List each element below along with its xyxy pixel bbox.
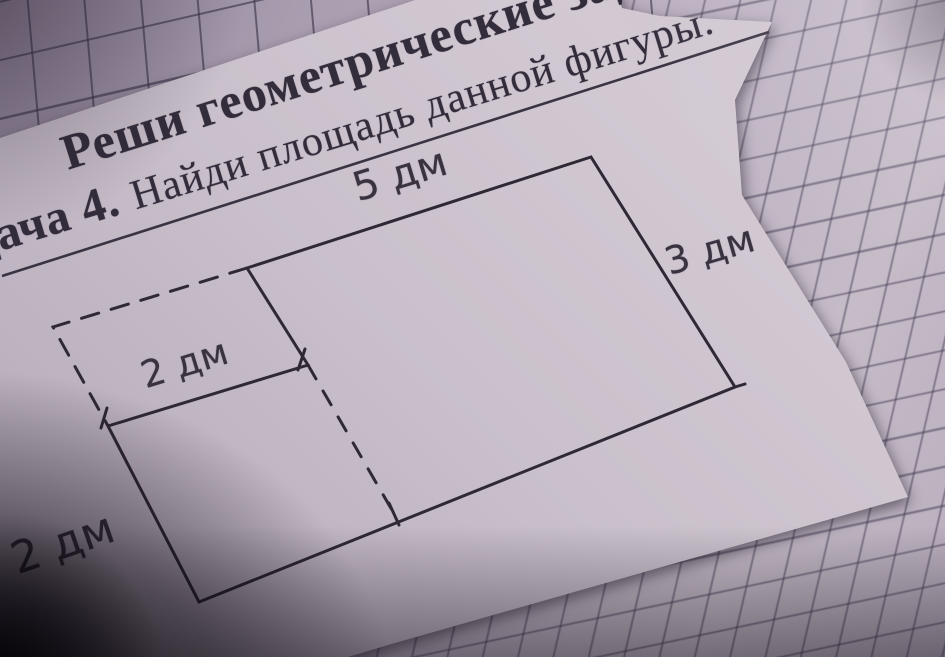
photographed-worksheet: Реши геометрические задачи. Задача 4. На… (0, 0, 945, 657)
